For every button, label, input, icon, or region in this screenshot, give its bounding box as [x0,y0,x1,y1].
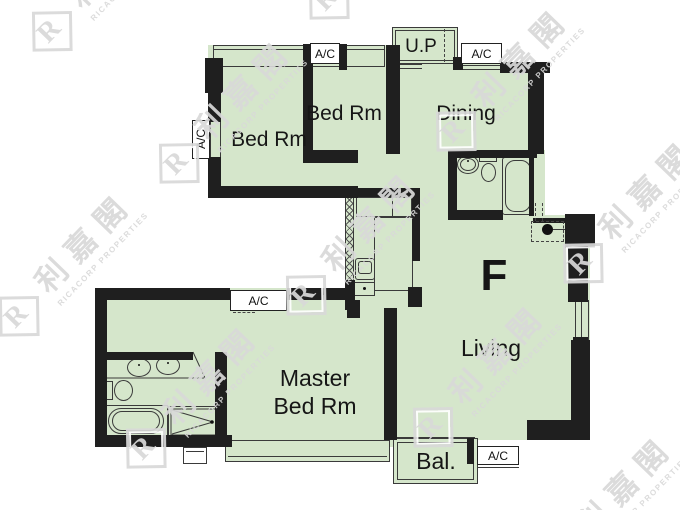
wall [95,435,232,447]
wall [528,62,544,154]
living-right-window [575,300,589,340]
vanity-basin-icon [127,358,151,377]
wall [565,214,595,248]
vanity-basin-tap [138,364,140,366]
wall [347,300,360,318]
ac-label: A/C [471,47,491,61]
watermark-chinese: 利嘉閣 [56,0,176,16]
wall [527,420,590,440]
wall [408,287,422,307]
bathtub-inner [505,160,531,212]
utility-platform-label: U.P [391,36,451,59]
ricacorp-logo-icon: R [12,0,86,68]
wall [568,248,588,302]
ac-unit-master: A/C [230,290,287,311]
balcony-label: Bal. [398,448,474,476]
bedroom-window-line [213,49,385,50]
watermark-english: RICACORP PROPERTIES [620,157,680,254]
ac-label: A/C [194,129,208,149]
master-bay-window [225,440,390,462]
stove-knob [363,287,366,290]
wall [529,154,534,216]
utility-platform-sill [400,64,422,69]
wall [568,296,580,302]
duct-dash-v1 [535,203,536,221]
floor-plan: A/C A/C A/C A/C A/C Bed Rm Bed Rm Dining… [0,0,680,510]
kitchen-sink-basin [358,261,372,274]
wall [356,188,420,197]
shower-door-lines [168,406,221,438]
bedroom2-label: Bed Rm [304,101,384,126]
wall [448,210,503,220]
master-bedroom-label: Master Bed Rm [240,365,390,420]
pipe-dot [542,224,553,235]
ac-label: A/C [248,294,268,308]
wall [208,93,221,122]
master-bedroom-label-line1: Master [240,365,390,393]
master-bedroom-label-line2: Bed Rm [240,393,390,421]
ricacorp-logo-icon: R [289,0,363,36]
wall [95,288,230,300]
ac-unit-dining: A/C [461,43,502,64]
ac-label: A/C [488,449,508,463]
wall [339,44,347,70]
wall [448,158,457,210]
wall [386,45,400,154]
ac-dash [233,312,255,313]
wall [412,197,420,261]
toilet-bowl [114,380,133,401]
watermark-chinese: 利嘉閣 [23,178,143,300]
wall [208,186,358,198]
kitchen-counter [374,217,413,291]
watermark: R 利嘉閣 RICACORP PROPERTIES [11,0,183,69]
water-heater-line [186,451,204,452]
kitchen-cabinet [356,197,412,217]
wall [448,150,537,158]
wall [95,300,107,447]
basin-tap [467,160,469,162]
master-bay-window-line [228,456,387,457]
toilet-bowl [481,163,496,182]
ac-unit-balcony: A/C [477,446,519,465]
wall [571,340,590,425]
bedroom1-label: Bed Rm [219,127,319,152]
watermark-chinese: 利嘉閣 [587,125,680,247]
bathtub-inner2 [112,411,160,431]
water-heater [183,447,207,464]
wall [103,352,193,360]
ac-unit-left: A/C [192,120,210,159]
ricacorp-logo-icon: R [0,279,53,353]
wall [205,58,223,93]
wall [287,288,347,300]
vanity-basin-tap [167,362,169,364]
living-label: Living [431,335,551,363]
ac-unit-bedrooms: A/C [310,43,340,64]
unit-letter: F [464,250,524,303]
folding-door [345,198,354,282]
duct-dash-v2 [542,203,543,221]
balcony-door-line [395,437,475,438]
ac-label: A/C [315,47,335,61]
living-right-window-line [581,300,582,340]
dining-label: Dining [416,101,516,126]
watermark-english: RICACORP PROPERTIES [89,0,184,23]
watermark-english: RICACORP PROPERTIES [597,453,680,510]
wall [215,352,227,440]
kitchen-cabinet-divider [392,197,393,217]
dining-window-sill [461,65,502,70]
